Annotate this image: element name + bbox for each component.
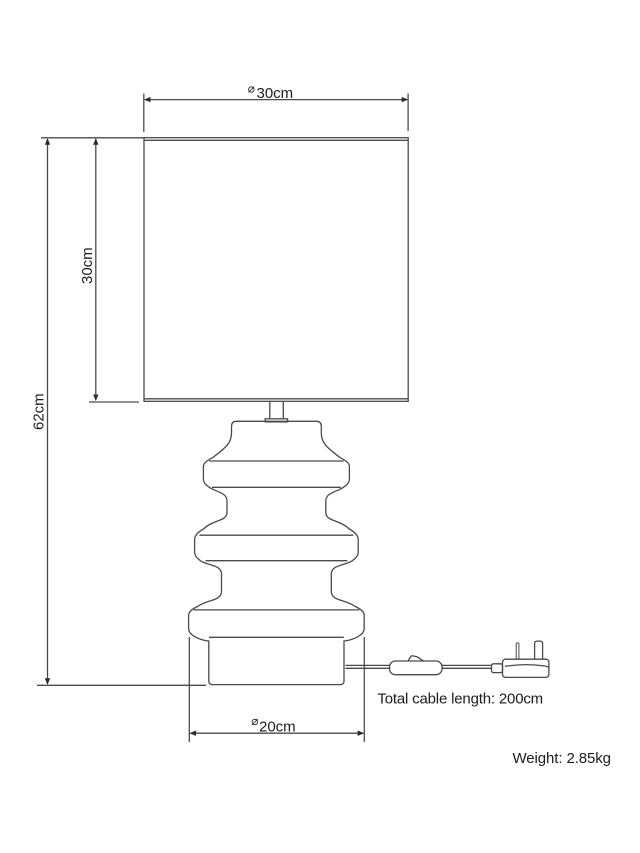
svg-text:20cm: 20cm	[259, 718, 296, 735]
svg-text:⌀: ⌀	[248, 81, 255, 95]
svg-text:30cm: 30cm	[257, 85, 294, 102]
svg-text:30cm: 30cm	[79, 247, 96, 284]
svg-text:Total cable length: 200cm: Total cable length: 200cm	[377, 691, 543, 708]
svg-text:Weight: 2.85kg: Weight: 2.85kg	[513, 750, 611, 767]
svg-text:⌀: ⌀	[251, 714, 258, 728]
svg-text:62cm: 62cm	[31, 393, 48, 430]
